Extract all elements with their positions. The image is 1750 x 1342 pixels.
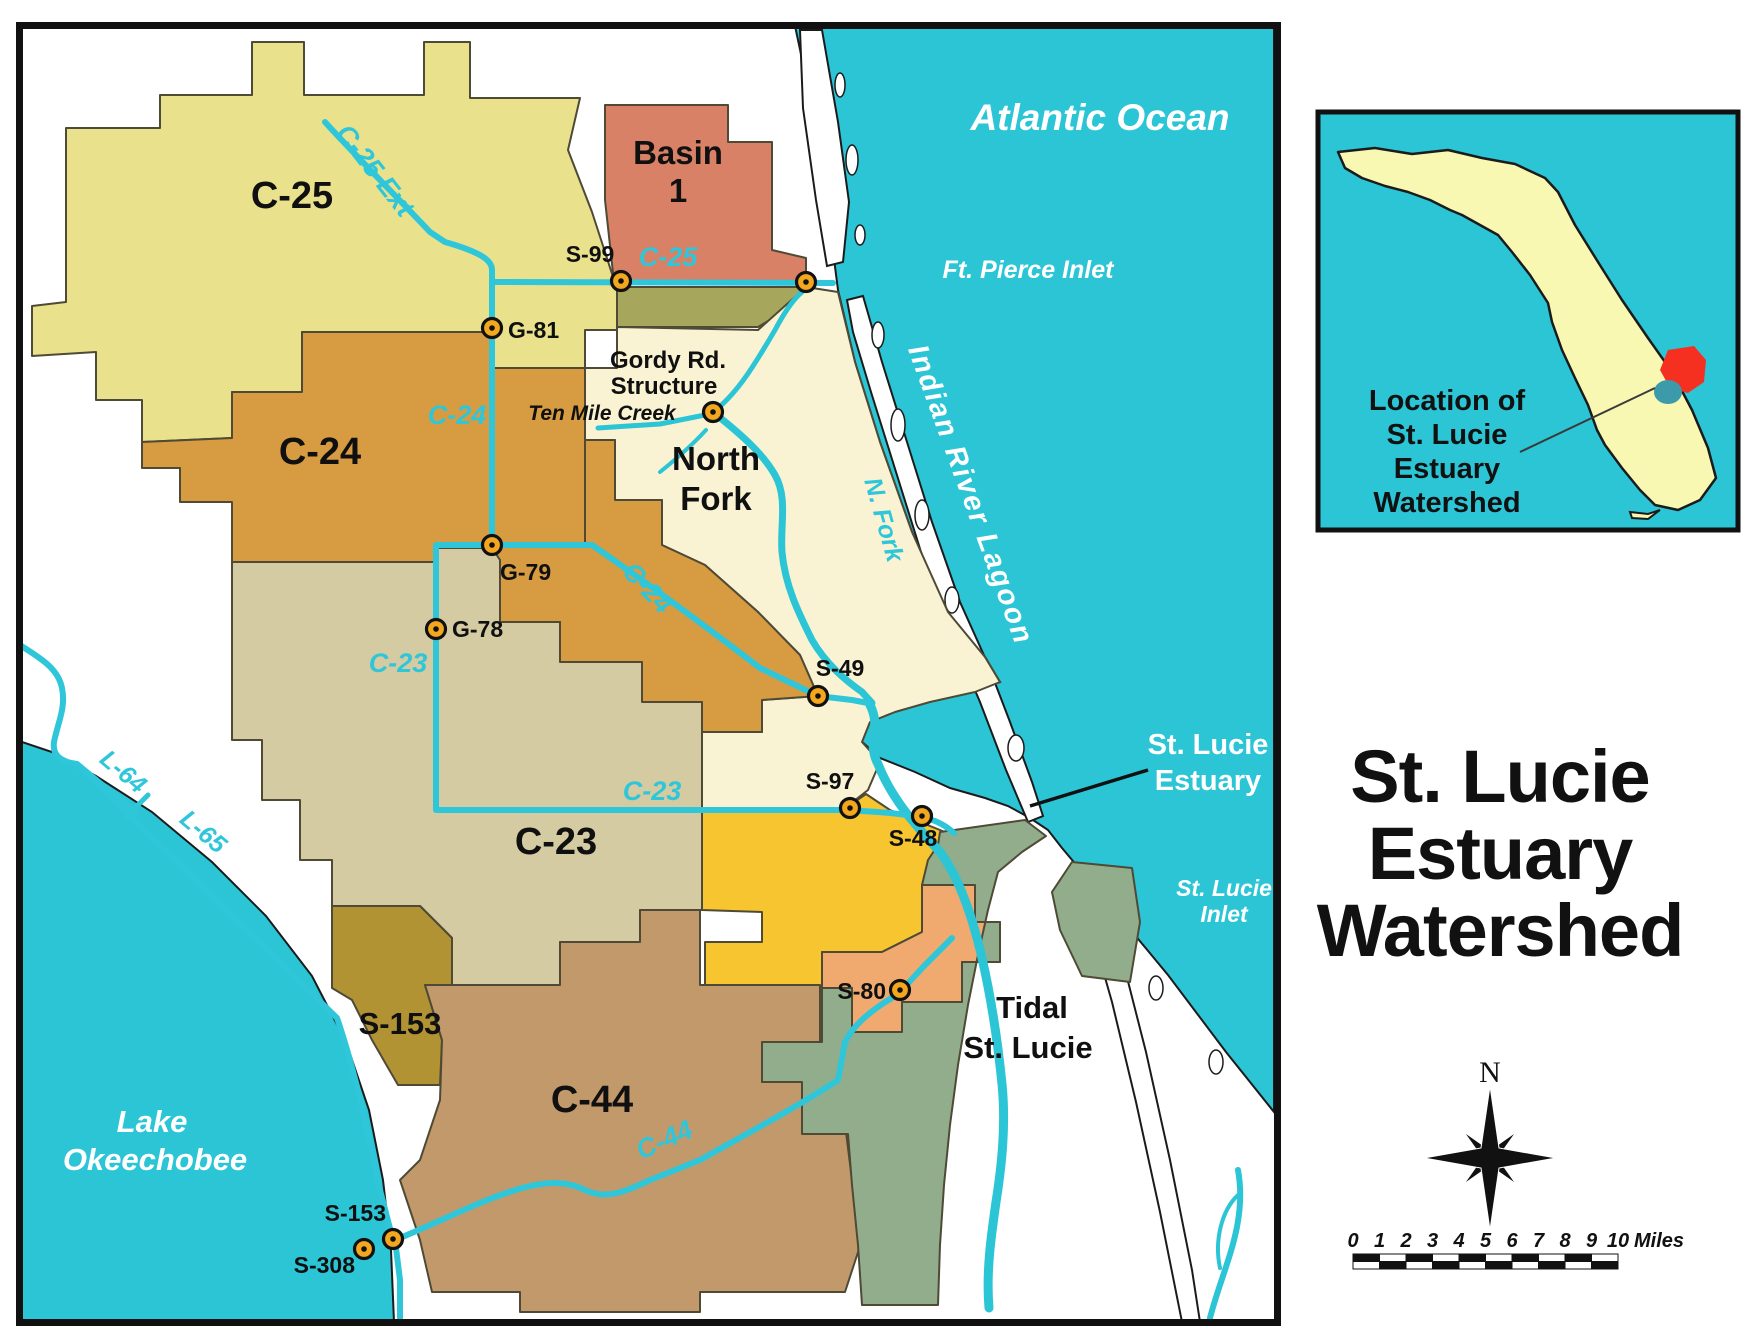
scalebar-tick-2: 2	[1399, 1230, 1411, 1252]
label-st-lucie-estuary-line1: St. Lucie	[1148, 729, 1269, 761]
scalebar-segment-bottom-9	[1592, 1262, 1619, 1270]
region-label-c23: C-23	[515, 821, 597, 863]
scalebar-segment-top-1	[1380, 1254, 1407, 1262]
label-st-lucie-inlet-line2: Inlet	[1200, 901, 1249, 927]
region-label-tidal-line1: Tidal	[996, 990, 1068, 1025]
structure-s49-dot-center	[815, 693, 821, 699]
page-title-line3: Watershed	[1317, 889, 1684, 972]
canal-label-c23-lower: C-23	[623, 776, 682, 806]
page-title-line2: Estuary	[1368, 812, 1633, 895]
scalebar-tick-8: 8	[1559, 1230, 1571, 1252]
structure-s48-dot-center	[919, 813, 925, 819]
scalebar-segment-top-5	[1486, 1254, 1513, 1262]
structure-s49-label: S-49	[816, 655, 865, 681]
region-label-northfork-line1: North	[672, 440, 760, 477]
structure-g78-dot-center	[433, 626, 439, 632]
structure-g81-label: G-81	[508, 317, 559, 343]
label-lake-okeechobee-line1: Lake	[117, 1104, 188, 1139]
label-ten-mile-creek: Ten Mile Creek	[528, 402, 677, 425]
structure-s99-dot-center	[618, 278, 624, 284]
structure-s97-label: S-97	[806, 768, 855, 794]
structure-s80-dot-center	[897, 987, 903, 993]
scalebar-tick-1: 1	[1374, 1230, 1385, 1252]
compass-north-label: N	[1479, 1056, 1501, 1089]
scalebar-segment-bottom-5	[1486, 1262, 1513, 1270]
structure-s97-dot-center	[847, 805, 853, 811]
label-atlantic-ocean: Atlantic Ocean	[969, 97, 1229, 138]
compass-star-main	[1424, 1086, 1556, 1230]
scalebar-tick-7: 7	[1533, 1230, 1545, 1252]
structure-s153-label: S-153	[325, 1200, 386, 1226]
inset-caption-line4: Watershed	[1373, 487, 1520, 519]
label-gordy-line1: Gordy Rd.	[610, 347, 726, 374]
scalebar-segment-top-2	[1406, 1254, 1433, 1262]
structure-g81-dot-center	[489, 325, 495, 331]
scalebar-segment-top-6	[1512, 1254, 1539, 1262]
label-st-lucie-inlet-line1: St. Lucie	[1176, 875, 1272, 901]
scalebar-tick-0: 0	[1347, 1230, 1358, 1252]
region-label-basin1-line2: 1	[669, 172, 687, 209]
structure-g79-label: G-79	[500, 559, 551, 585]
scalebar-segment-bottom-3	[1433, 1262, 1460, 1270]
map-figure: C-25Basin1C-24NorthForkC-23S-153C-44Tida…	[0, 0, 1750, 1342]
canal-label-c23-upper: C-23	[369, 648, 428, 678]
scalebar-tick-3: 3	[1427, 1230, 1438, 1252]
region-label-s153: S-153	[359, 1006, 442, 1041]
label-lake-okeechobee-line2: Okeechobee	[63, 1142, 247, 1177]
region-label-c44: C-44	[551, 1079, 633, 1121]
structure-s153-dot-center	[390, 1236, 396, 1242]
label-gordy-line2: Structure	[611, 373, 718, 400]
structure-s308-label: S-308	[294, 1252, 356, 1278]
inset-caption-line2: St. Lucie	[1387, 419, 1508, 451]
structure-s80-label: S-80	[837, 978, 886, 1004]
scalebar-tick-9: 9	[1586, 1230, 1598, 1252]
scalebar-tick-10: 10	[1607, 1230, 1629, 1252]
structure-s48-label: S-48	[889, 825, 938, 851]
scalebar-segment-bottom-6	[1512, 1262, 1539, 1270]
main-map	[20, 26, 1278, 1323]
inset-lake-okeechobee	[1654, 380, 1682, 404]
scalebar-segment-bottom-2	[1406, 1262, 1433, 1270]
label-ft-pierce-inlet: Ft. Pierce Inlet	[943, 256, 1116, 284]
scalebar-segment-top-3	[1433, 1254, 1460, 1262]
structure-s80: S-80	[837, 978, 909, 1004]
canal-label-c25: C-25	[639, 242, 699, 272]
region-label-c25: C-25	[251, 175, 333, 217]
structure-s99-label: S-99	[566, 241, 615, 267]
canal-c25	[492, 282, 833, 283]
scalebar-tick-5: 5	[1480, 1230, 1492, 1252]
compass-rose: N	[1424, 1056, 1556, 1230]
structure-gordy-rd	[704, 403, 723, 422]
scalebar-segment-bottom-1	[1380, 1262, 1407, 1270]
scalebar-segment-top-0	[1353, 1254, 1380, 1262]
structure-g79-dot-center	[489, 542, 495, 548]
scale-bar: 012345678910Miles	[1347, 1230, 1684, 1269]
scalebar-segment-bottom-7	[1539, 1262, 1566, 1270]
structure-g78-label: G-78	[452, 616, 503, 642]
inset-map: Location of St. Lucie Estuary Watershed	[1318, 112, 1738, 530]
region-label-basin1-line1: Basin	[633, 134, 723, 171]
region-label-tidal-line2: St. Lucie	[963, 1030, 1092, 1065]
structure-s308-dot-center	[361, 1246, 367, 1252]
scalebar-segment-bottom-0	[1353, 1262, 1380, 1270]
structure-ft-pierce-dot-center	[803, 279, 809, 285]
scalebar-segment-top-7	[1539, 1254, 1566, 1262]
canal-label-c24-upper: C-24	[428, 400, 487, 430]
page: C-25Basin1C-24NorthForkC-23S-153C-44Tida…	[0, 0, 1750, 1342]
structure-ft-pierce	[797, 273, 816, 292]
scalebar-tick-4: 4	[1452, 1230, 1464, 1252]
scalebar-unit-label: Miles	[1634, 1230, 1684, 1252]
scalebar-segment-top-9	[1592, 1254, 1619, 1262]
scalebar-segment-top-4	[1459, 1254, 1486, 1262]
scalebar-segment-bottom-8	[1565, 1262, 1592, 1270]
page-title-line1: St. Lucie	[1350, 735, 1649, 818]
scalebar-segment-bottom-4	[1459, 1262, 1486, 1270]
label-st-lucie-estuary-line2: Estuary	[1155, 765, 1261, 797]
inset-caption-line3: Estuary	[1394, 453, 1500, 485]
scalebar-segment-top-8	[1565, 1254, 1592, 1262]
structure-gordy-rd-dot-center	[710, 409, 716, 415]
structure-g78: G-78	[427, 616, 504, 642]
scalebar-tick-6: 6	[1506, 1230, 1518, 1252]
page-title: St. Lucie Estuary Watershed	[1317, 735, 1684, 972]
region-label-northfork-line2: Fork	[680, 480, 752, 517]
inset-caption-line1: Location of	[1369, 385, 1526, 417]
region-label-c24: C-24	[279, 431, 361, 473]
